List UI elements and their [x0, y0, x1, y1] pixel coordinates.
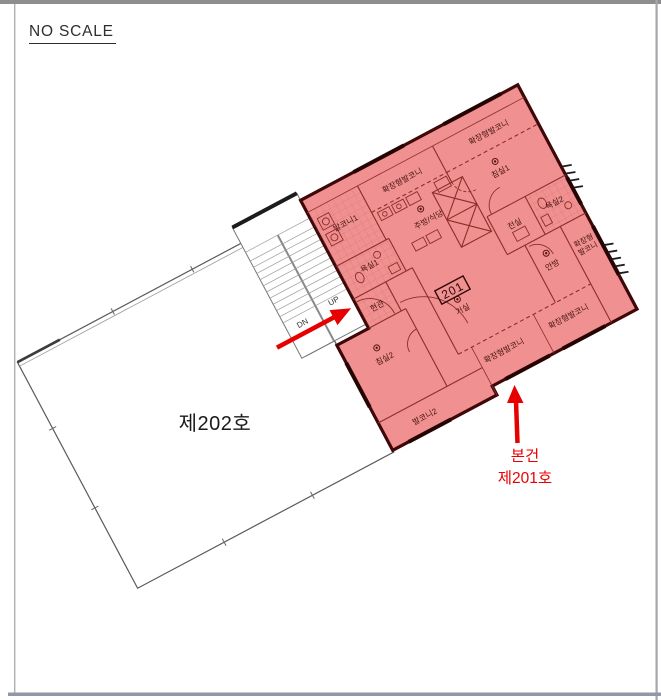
callout-line2: 제201호 [470, 466, 580, 488]
callout-arrow [507, 385, 524, 443]
scanned-floorplan-page: DN UP [0, 0, 661, 700]
floorplan-svg: DN UP [0, 0, 661, 700]
unit-202-label: 제202호 [160, 407, 270, 436]
no-scale-label: NO SCALE [29, 23, 116, 44]
rotated-plan-group: DN UP [5, 73, 653, 594]
callout-line1: 본건 [470, 444, 580, 466]
